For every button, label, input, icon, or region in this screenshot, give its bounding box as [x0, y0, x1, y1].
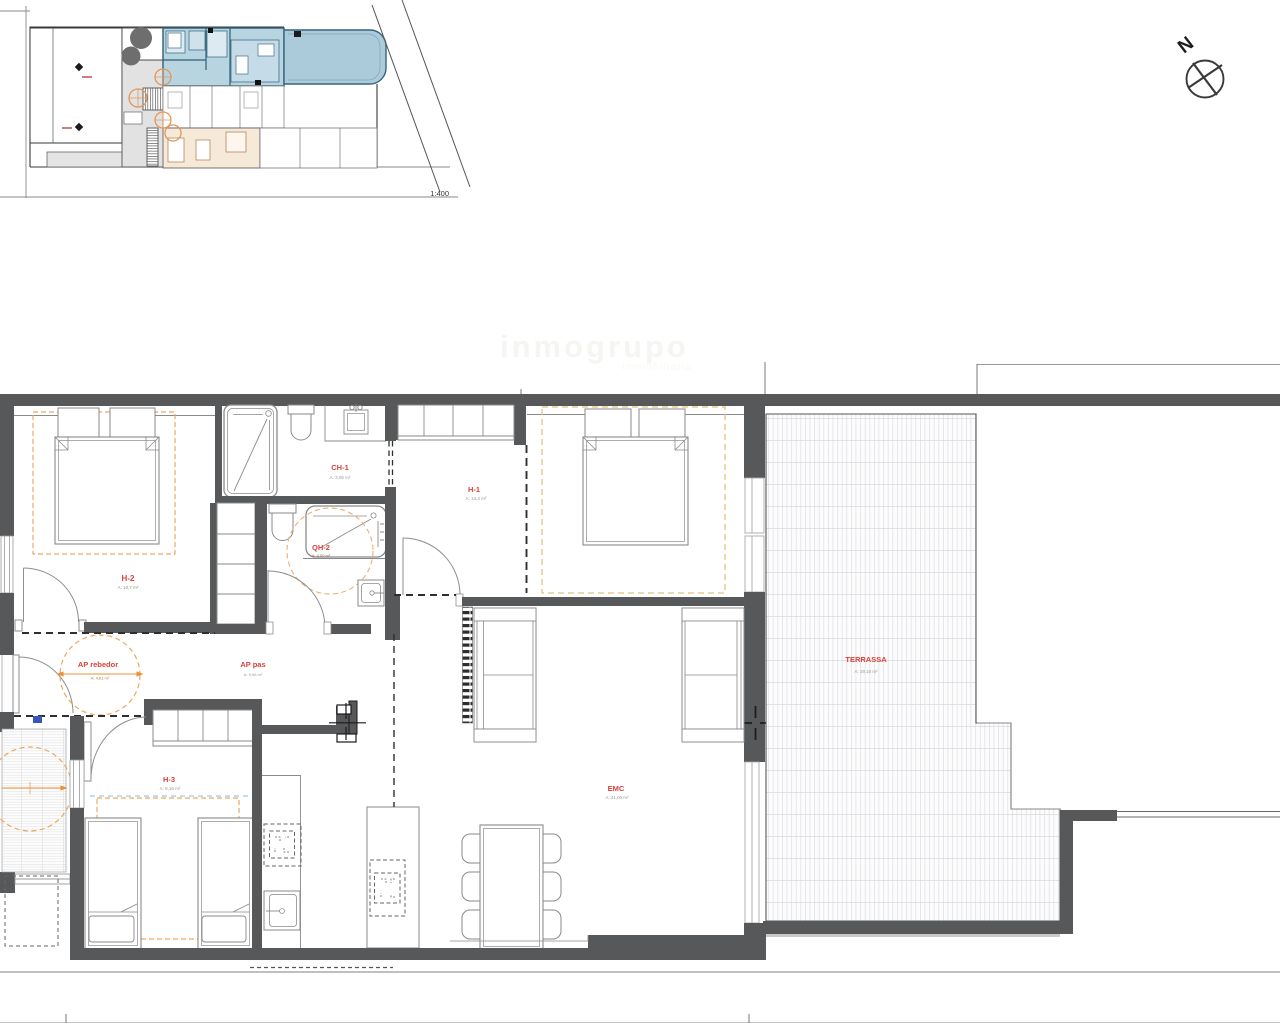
svg-text:TERRASSA: TERRASSA	[845, 655, 887, 664]
svg-text:immobiliaria: immobiliaria	[622, 361, 693, 373]
svg-text:A: 8,16 m²: A: 8,16 m²	[160, 786, 181, 791]
svg-text:H-3: H-3	[163, 775, 175, 784]
svg-text:EMC: EMC	[608, 784, 625, 793]
svg-text:1:400: 1:400	[430, 189, 449, 198]
svg-text:inmogrupo: inmogrupo	[500, 329, 689, 364]
svg-text:A: 12,4 m²: A: 12,4 m²	[466, 496, 487, 501]
svg-text:A: 3,05 m²: A: 3,05 m²	[330, 475, 351, 480]
svg-text:AP rebedor: AP rebedor	[78, 660, 118, 669]
svg-text:AP pas: AP pas	[240, 660, 265, 669]
svg-text:H-1: H-1	[468, 485, 480, 494]
svg-text:A: 4,00 m²: A: 4,00 m²	[312, 553, 331, 558]
svg-text:H-2: H-2	[122, 574, 135, 583]
svg-text:CH-1: CH-1	[331, 463, 349, 472]
svg-text:A: 41,00 m²: A: 41,00 m²	[605, 795, 629, 800]
svg-text:A: 9,96 m²: A: 9,96 m²	[244, 672, 263, 677]
svg-text:A: 10,7 m²: A: 10,7 m²	[118, 585, 139, 590]
svg-text:A: 19,10 m²: A: 19,10 m²	[854, 669, 878, 674]
svg-text:QH-2: QH-2	[312, 543, 330, 552]
svg-text:A: 4,61 m²: A: 4,61 m²	[91, 676, 110, 681]
